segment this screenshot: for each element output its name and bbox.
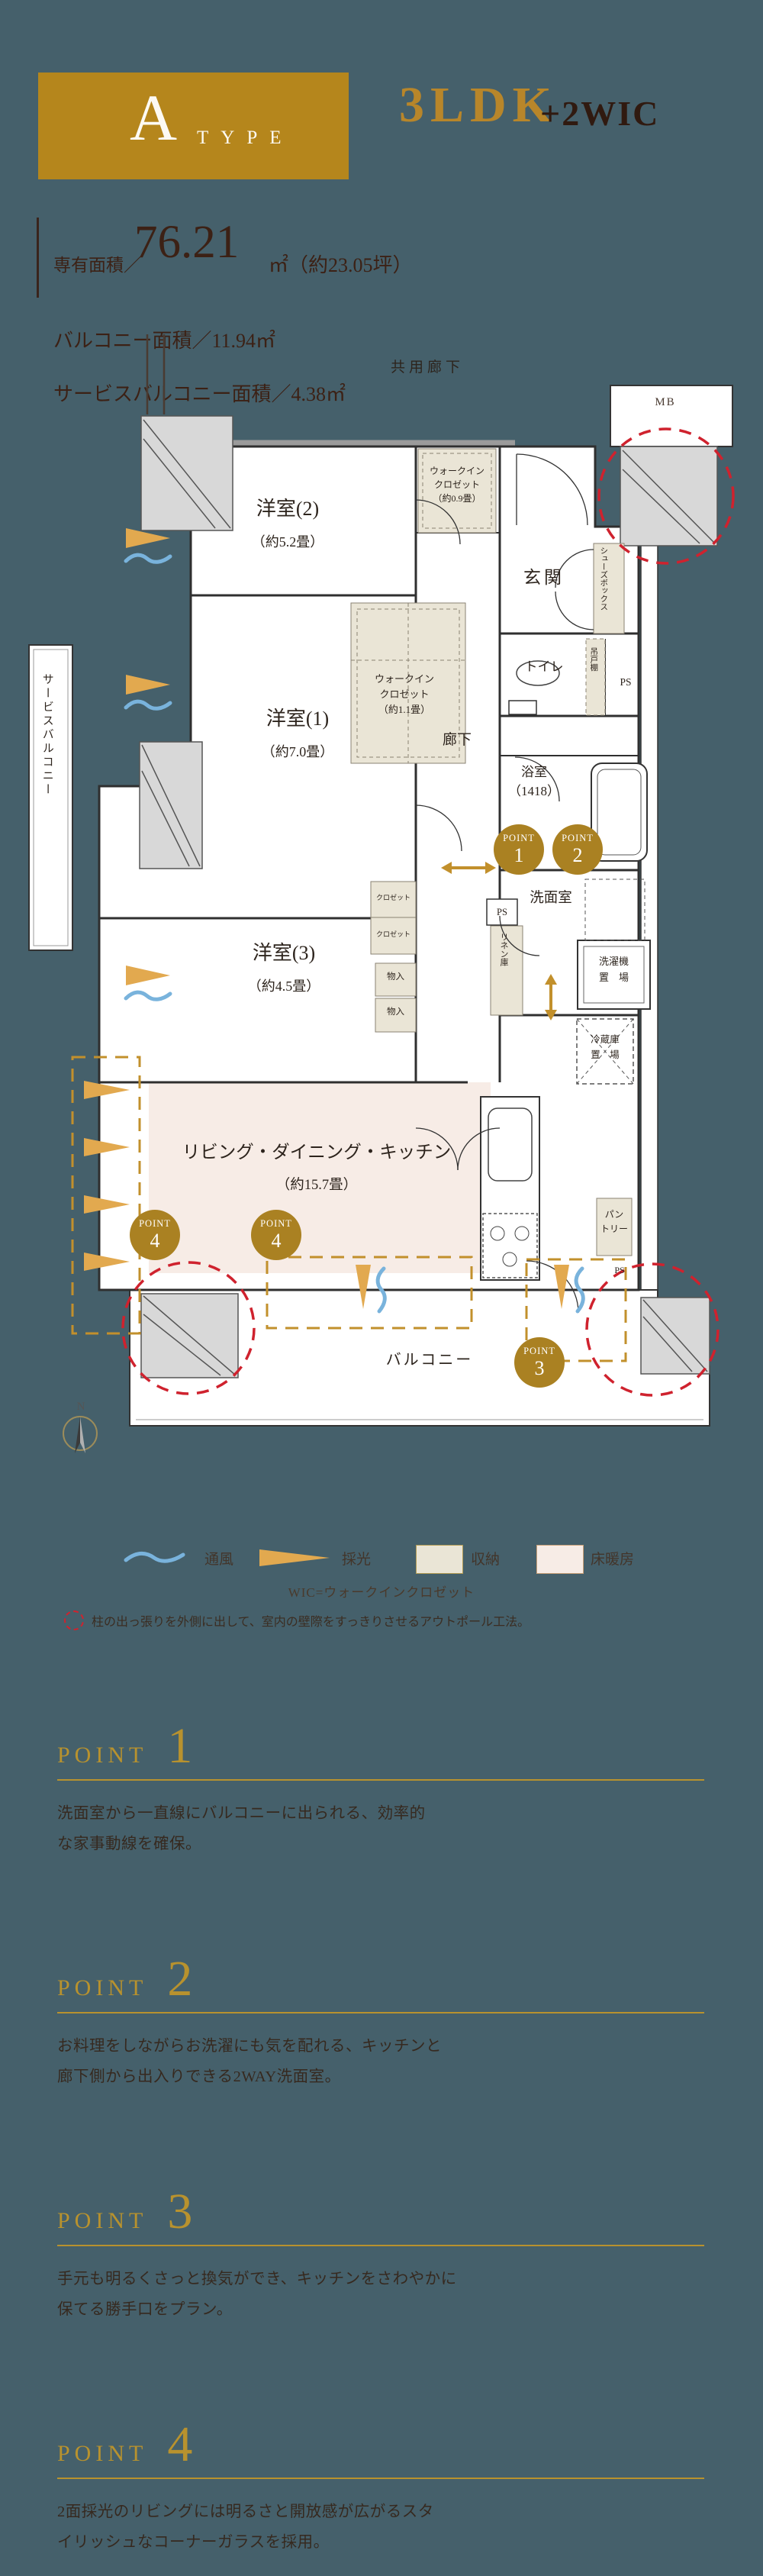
ps-label-top: PS [610, 675, 641, 690]
wall-stubs [147, 334, 164, 414]
plan-point-4-marker-b: POINT4 [251, 1210, 301, 1260]
room3-label: 洋室(3) [211, 939, 356, 968]
point-section-3: POINT 3 手元も明るくさっと換気ができ、キッチンをさわやかに 保てる勝手口… [57, 2187, 704, 2326]
point-3-heading: POINT 3 [57, 2187, 704, 2237]
point-4-rule [57, 2478, 704, 2479]
exclusive-area-unit: ㎡（約23.05坪） [269, 250, 413, 278]
outpole-note-row: 柱の出っ張りを外側に出して、室内の壁際をすっきりさせるアウトポール工法。 [64, 1610, 530, 1630]
fridge-label: 冷蔵庫 置 場 [574, 1032, 636, 1062]
point-4-text: 2面採光のリビングには明るさと開放感が広がるスタ イリッシュなコーナーガラスを採… [57, 2497, 704, 2558]
ps-label-bottom: PS [607, 1264, 633, 1277]
type-letter: A [130, 79, 177, 157]
exclusive-area-value: 76.21 [134, 216, 239, 269]
point-2-text: お料理をしながらお洗濯にも気を配れる、キッチンと 廊下側から出入りできる2WAY… [57, 2032, 704, 2093]
storage-swatch-icon [416, 1545, 463, 1574]
pantry-label: パン トリー [595, 1207, 633, 1236]
layout-suffix: +2WIC [540, 93, 659, 134]
plan-point-4-marker-a: POINT4 [130, 1210, 180, 1260]
point-3-rule [57, 2245, 704, 2246]
hanging-shelf-label: 吊戸棚 [588, 647, 599, 712]
daylight-triangle-icon [259, 1549, 330, 1566]
point-section-2: POINT 2 お料理をしながらお洗濯にも気を配れる、キッチンと 廊下側から出入… [57, 1954, 704, 2093]
type-badge: A TYPE [38, 73, 349, 179]
legend-storage-label: 収納 [471, 1548, 500, 1568]
hallway-label: 廊下 [425, 730, 489, 751]
compass-icon [63, 1417, 97, 1453]
toilet-label: トイレ [500, 658, 588, 677]
balcony-label: バルコニー [365, 1349, 494, 1372]
compass-n-label: N [73, 1399, 89, 1416]
storage-label-1: 物入 [374, 971, 417, 984]
shared-corridor-label: 共用廊下 [351, 357, 504, 379]
point-1-rule [57, 1779, 704, 1781]
point-2-heading: POINT 2 [57, 1954, 704, 2004]
closet-label-1: クロゼット [372, 893, 415, 903]
point-section-1: POINT 1 洗面室から一直線にバルコニーに出られる、効率的 な家事動線を確保… [57, 1721, 704, 1860]
point-1-text: 洗面室から一直線にバルコニーに出られる、効率的 な家事動線を確保。 [57, 1799, 704, 1860]
floorplan-drawing [23, 313, 740, 1519]
floor-heating-swatch-icon [536, 1545, 584, 1574]
exclusive-area-label: 専有面積／ [53, 250, 141, 276]
bathroom-label: 浴室 （1418） [492, 763, 576, 801]
point-2-rule [57, 2012, 704, 2013]
info-left-rule [37, 218, 39, 298]
ps-label-mid: PS [487, 905, 517, 919]
room3-size: （約4.5畳） [211, 976, 356, 996]
linen-label: リネン庫 [497, 933, 509, 1013]
legend-ventilation-label: 通風 [204, 1548, 233, 1568]
entrance-label: 玄関 [496, 565, 592, 590]
point-section-4: POINT 4 2面採光のリビングには明るさと開放感が広がるスタ イリッシュなコ… [57, 2420, 704, 2558]
closet-label-2: クロゼット [372, 930, 415, 940]
wic09-label: ウォークイン クロゼット （約0.9畳） [418, 464, 496, 505]
point-3-text: 手元も明るくさっと換気ができ、キッチンをさわやかに 保てる勝手口をプラン。 [57, 2265, 704, 2326]
ldk-size: （約15.7畳） [160, 1175, 473, 1196]
shoe-box-label: シューズボックス [597, 546, 609, 632]
plan-point-1-marker: POINT1 [494, 824, 544, 875]
wic-note: WIC=ウォークインクロゼット [0, 1581, 763, 1601]
legend-daylight-label: 採光 [342, 1548, 371, 1568]
point-1-heading: POINT 1 [57, 1721, 704, 1772]
outpole-circle-icon [64, 1610, 84, 1630]
room1-size: （約7.0畳） [225, 742, 370, 762]
washer-label: 洗濯機 置 場 [578, 954, 650, 986]
point-4-heading: POINT 4 [57, 2420, 704, 2470]
room2-label: 洋室(2) [215, 495, 360, 524]
outpole-note-text: 柱の出っ張りを外側に出して、室内の壁際をすっきりさせるアウトポール工法。 [92, 1611, 530, 1630]
service-balcony-label: サービスバルコニー [38, 673, 55, 927]
layout-label: 3LDK [399, 76, 558, 134]
floorplan-page: A TYPE 3LDK +2WIC 専有面積／ 76.21 ㎡（約23.05坪）… [0, 0, 763, 2576]
plan-point-2-marker: POINT2 [552, 824, 603, 875]
ventilation-wave-icon [122, 1549, 187, 1566]
wic11-label: ウォークイン クロゼット （約1.1畳） [345, 672, 464, 717]
ldk-label: リビング・ダイニング・キッチン [160, 1140, 473, 1165]
storage-label-2: 物入 [374, 1006, 417, 1019]
legend-floor-heating-label: 床暖房 [591, 1548, 634, 1568]
mb-label: MB [639, 395, 692, 411]
type-word: TYPE [197, 127, 294, 149]
room2-size: （約5.2畳） [215, 532, 360, 552]
plan-point-3-marker: POINT3 [514, 1337, 565, 1388]
